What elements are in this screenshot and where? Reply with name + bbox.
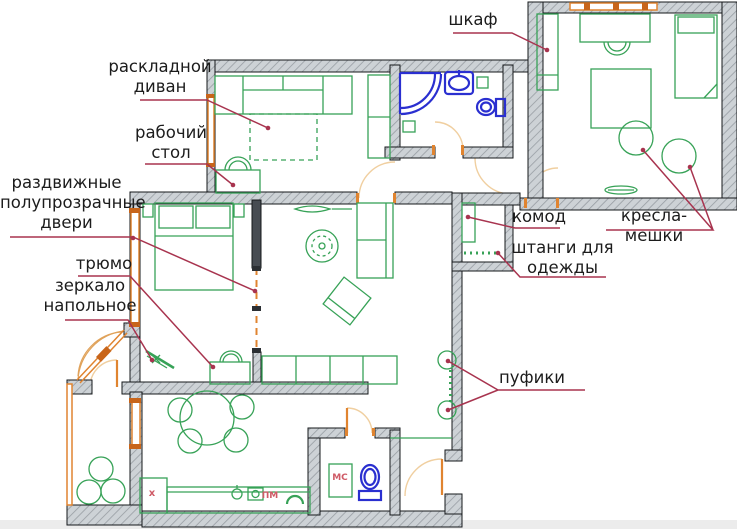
mark-dishwasher: ПМ <box>260 491 280 501</box>
label-poufs: пуфики <box>498 368 566 388</box>
mark-kitchen-x: x <box>146 488 158 499</box>
label-floor-mirror: зеркало напольное <box>38 276 142 316</box>
floor-plan-screenshot: шкаф раскладной диван рабочий стол раздв… <box>0 0 737 529</box>
label-beanbags: кресла-мешки <box>595 206 713 246</box>
partition-wall-segment <box>252 200 261 268</box>
mark-washing-machine: МС <box>330 473 350 483</box>
label-desk: рабочий стол <box>127 123 215 163</box>
label-komod: комод <box>507 207 571 227</box>
label-trumeau: трюмо <box>71 254 137 274</box>
label-sliding-doors: раздвижные полупрозрачные двери <box>0 173 133 233</box>
label-wardrobe: шкаф <box>441 10 505 30</box>
label-sofa: раскладной диван <box>102 57 218 97</box>
